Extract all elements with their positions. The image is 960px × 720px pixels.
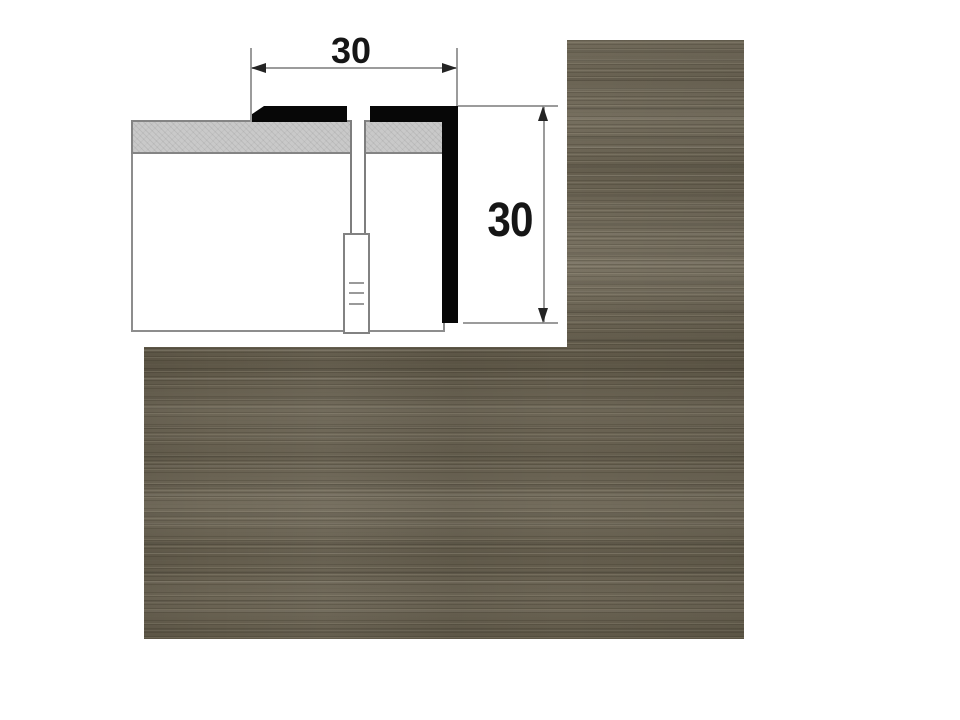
width-arrow-left-icon <box>251 63 266 73</box>
height-dimension-line <box>543 106 545 323</box>
dowel-rib-mark <box>349 292 364 294</box>
width-dimension-label: 30 <box>323 33 379 69</box>
profile-cross-section-diagram: 30 30 <box>108 8 567 347</box>
height-arrow-down-icon <box>538 308 548 323</box>
height-arrow-up-icon <box>538 106 548 121</box>
dowel-rib-mark <box>349 282 364 284</box>
profile-top-flange-left <box>251 106 347 122</box>
flooring-layer <box>131 120 445 154</box>
width-extension-line-right <box>456 48 458 106</box>
width-extension-line-left <box>250 48 252 122</box>
product-image: 30 30 <box>0 0 960 720</box>
profile-drop-leg <box>442 106 458 323</box>
dowel-rib-mark <box>349 303 364 305</box>
width-arrow-right-icon <box>442 63 457 73</box>
height-dimension-label: 30 <box>485 197 534 245</box>
screw-channel <box>350 120 366 233</box>
